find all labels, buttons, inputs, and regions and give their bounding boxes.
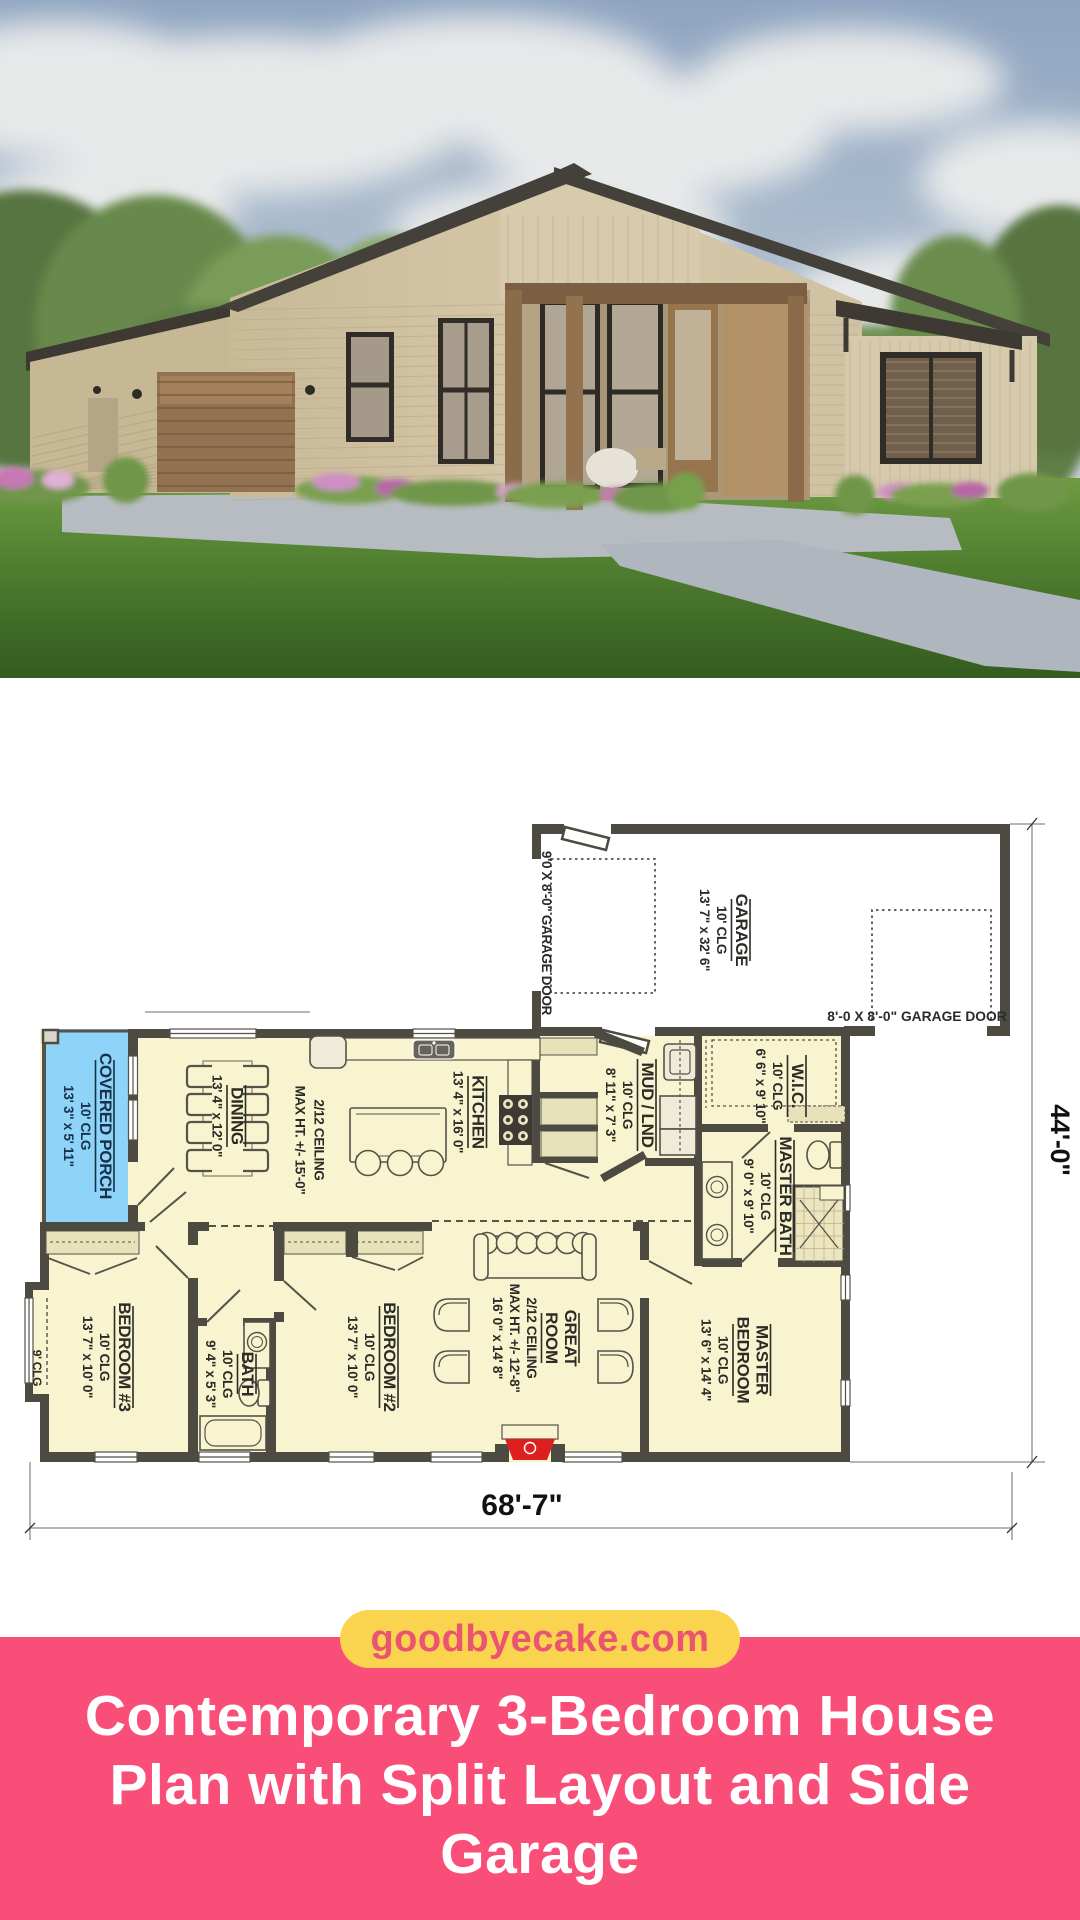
svg-text:DINING: DINING bbox=[228, 1087, 247, 1145]
svg-text:BATH: BATH bbox=[238, 1352, 257, 1397]
svg-text:2/12 CEILING: 2/12 CEILING bbox=[524, 1297, 539, 1378]
svg-text:GREAT: GREAT bbox=[561, 1310, 580, 1368]
svg-text:BEDROOM #2: BEDROOM #2 bbox=[380, 1302, 399, 1411]
svg-text:44'-0": 44'-0" bbox=[1045, 1104, 1075, 1175]
svg-text:GARAGE: GARAGE bbox=[732, 894, 751, 967]
svg-text:10' CLG: 10' CLG bbox=[78, 1102, 93, 1150]
svg-text:9' 0" x 9' 10": 9' 0" x 9' 10" bbox=[741, 1158, 756, 1233]
svg-text:10' CLG: 10' CLG bbox=[758, 1172, 773, 1220]
svg-text:10' CLG: 10' CLG bbox=[714, 906, 729, 954]
svg-text:BEDROOM: BEDROOM bbox=[734, 1317, 753, 1404]
svg-text:10' CLG: 10' CLG bbox=[620, 1081, 635, 1129]
svg-text:10' CLG: 10' CLG bbox=[770, 1062, 785, 1110]
svg-text:13' 6" x 14' 4": 13' 6" x 14' 4" bbox=[699, 1319, 714, 1401]
svg-text:13' 4" x 12' 0": 13' 4" x 12' 0" bbox=[210, 1075, 225, 1157]
svg-text:6' 6" x 9' 10": 6' 6" x 9' 10" bbox=[753, 1048, 768, 1123]
svg-text:8'-0 X 8'-0" GARAGE DOOR: 8'-0 X 8'-0" GARAGE DOOR bbox=[827, 1009, 1007, 1024]
svg-text:10' CLG: 10' CLG bbox=[716, 1336, 731, 1384]
svg-text:13' 4" x 16' 0": 13' 4" x 16' 0" bbox=[451, 1071, 466, 1153]
svg-text:MASTER BATH: MASTER BATH bbox=[776, 1136, 795, 1255]
svg-text:W.I.C.: W.I.C. bbox=[788, 1064, 807, 1108]
svg-text:ROOM: ROOM bbox=[542, 1312, 561, 1364]
svg-text:13' 7" x 10' 0": 13' 7" x 10' 0" bbox=[80, 1316, 95, 1398]
svg-text:9'0 X 8'-0" GARAGE DOOR: 9'0 X 8'-0" GARAGE DOOR bbox=[539, 851, 554, 1016]
svg-text:COVERED PORCH: COVERED PORCH bbox=[96, 1053, 115, 1199]
svg-text:MAX HT. +/- 12'-8": MAX HT. +/- 12'-8" bbox=[507, 1284, 522, 1393]
svg-text:10' CLG: 10' CLG bbox=[220, 1350, 235, 1398]
svg-text:10' CLG: 10' CLG bbox=[97, 1333, 112, 1381]
svg-text:KITCHEN: KITCHEN bbox=[469, 1075, 488, 1148]
svg-text:MUD / LND: MUD / LND bbox=[638, 1062, 657, 1147]
svg-text:MAX HT. +/- 15'-0": MAX HT. +/- 15'-0" bbox=[293, 1086, 308, 1195]
svg-text:10' CLG: 10' CLG bbox=[362, 1333, 377, 1381]
svg-text:13' 3" x 5' 11": 13' 3" x 5' 11" bbox=[61, 1085, 76, 1167]
svg-text:8' 11" x 7' 3": 8' 11" x 7' 3" bbox=[603, 1068, 618, 1142]
svg-text:9' 4" x 5' 3": 9' 4" x 5' 3" bbox=[203, 1340, 218, 1408]
svg-text:2/12 CEILING: 2/12 CEILING bbox=[312, 1099, 327, 1180]
svg-text:16' 0" x 14' 8": 16' 0" x 14' 8" bbox=[490, 1297, 505, 1379]
svg-text:MASTER: MASTER bbox=[753, 1325, 772, 1395]
svg-text:BEDROOM #3: BEDROOM #3 bbox=[115, 1302, 134, 1411]
svg-text:13' 7" x 10' 0": 13' 7" x 10' 0" bbox=[345, 1316, 360, 1398]
svg-text:9' CLG: 9' CLG bbox=[30, 1350, 44, 1386]
svg-text:13' 7" x 32' 6": 13' 7" x 32' 6" bbox=[697, 889, 712, 971]
svg-text:68'-7": 68'-7" bbox=[481, 1489, 562, 1522]
